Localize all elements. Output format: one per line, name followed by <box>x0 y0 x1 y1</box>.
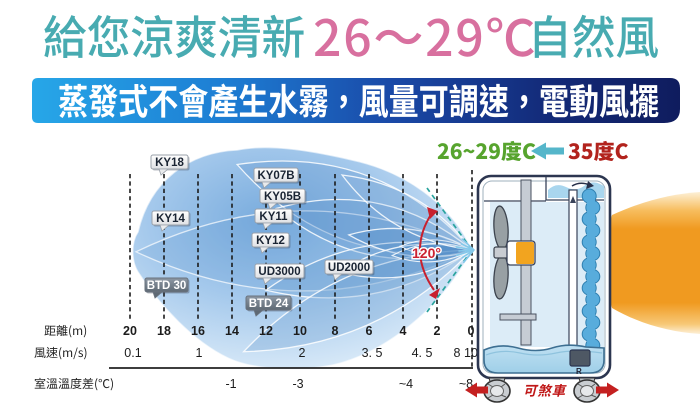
svg-text:120°: 120° <box>412 245 441 261</box>
svg-text:UD3000: UD3000 <box>258 266 300 278</box>
svg-text:KY07B: KY07B <box>257 170 294 182</box>
svg-text:KY18: KY18 <box>155 157 184 169</box>
svg-text:KY12: KY12 <box>256 235 285 247</box>
svg-text:BTD 30: BTD 30 <box>147 280 187 292</box>
svg-text:UD2000: UD2000 <box>328 262 370 274</box>
svg-text:KY14: KY14 <box>156 213 185 225</box>
svg-text:R: R <box>576 367 582 376</box>
svg-text:BTD 24: BTD 24 <box>249 298 289 310</box>
svg-text:KY05B: KY05B <box>264 191 301 203</box>
svg-text:KY11: KY11 <box>259 211 288 223</box>
